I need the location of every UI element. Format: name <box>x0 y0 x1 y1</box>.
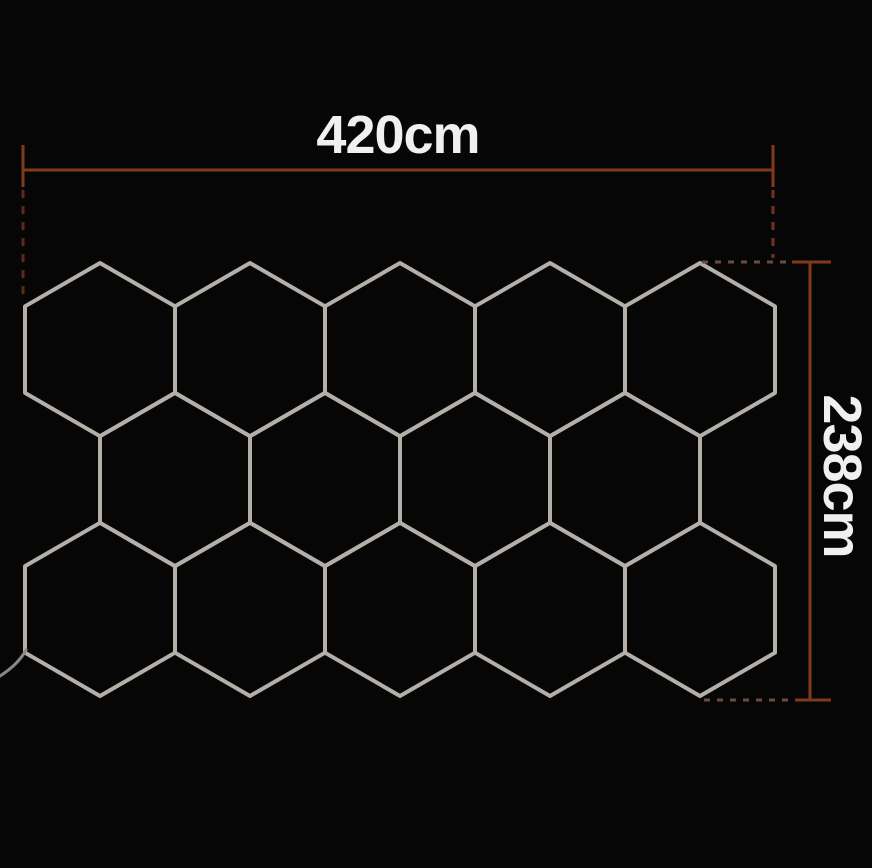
hexagon-panel <box>325 523 475 696</box>
hexagon-panel <box>625 263 775 436</box>
hexagon-light-dimension-diagram: 420cm 238cm <box>0 0 872 868</box>
power-cable-icon <box>0 650 26 676</box>
hexagon-panel <box>175 263 325 436</box>
hexagon-panel <box>100 393 250 566</box>
hexagon-panel <box>475 263 625 436</box>
hexagon-panel <box>475 523 625 696</box>
hexagon-panel <box>625 523 775 696</box>
hexagon-panel <box>25 263 175 436</box>
hexagon-panel <box>250 393 400 566</box>
hexagon-panel <box>175 523 325 696</box>
width-dimension-label: 420cm <box>23 108 773 162</box>
hexagon-panel <box>400 393 550 566</box>
hexagon-panel <box>325 263 475 436</box>
height-dimension-label: 238cm <box>815 394 869 557</box>
hexagon-panel <box>25 523 175 696</box>
hexagon-panel <box>550 393 700 566</box>
